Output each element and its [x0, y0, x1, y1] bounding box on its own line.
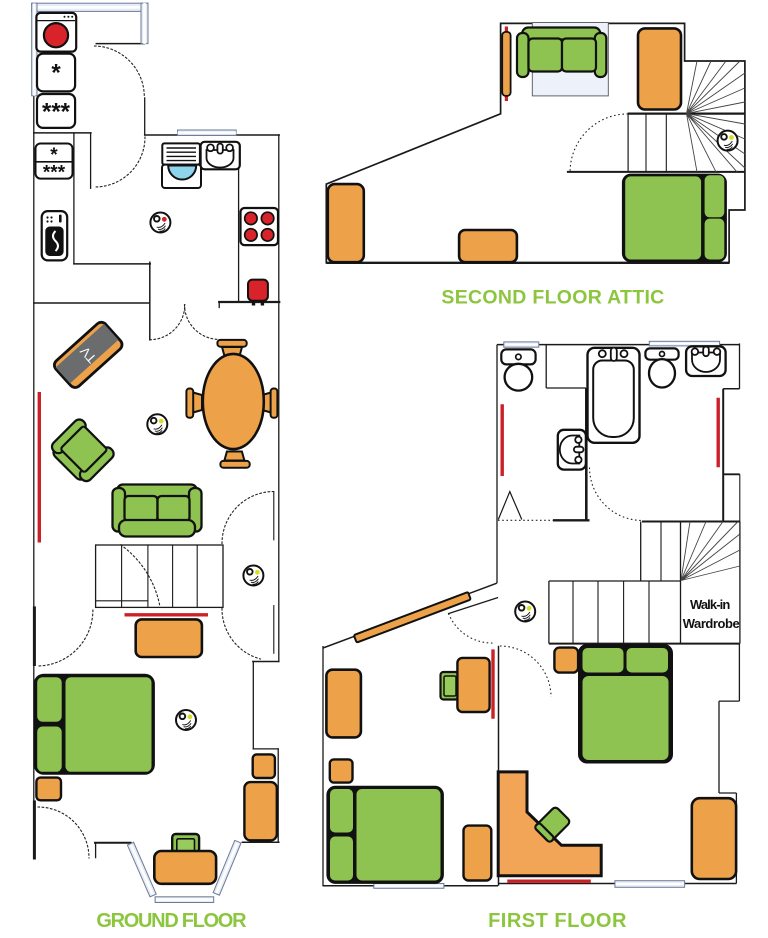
svg-text:FIRST FLOOR: FIRST FLOOR: [488, 910, 627, 932]
svg-text:*: *: [51, 60, 61, 87]
svg-text:***: ***: [42, 99, 71, 126]
svg-text:Wardrobe: Wardrobe: [683, 616, 740, 631]
svg-text:Walk-in: Walk-in: [690, 597, 730, 612]
svg-text:***: ***: [43, 163, 66, 184]
svg-text:SECOND FLOOR ATTIC: SECOND FLOOR ATTIC: [441, 287, 664, 309]
svg-text:GROUND FLOOR: GROUND FLOOR: [96, 910, 247, 932]
